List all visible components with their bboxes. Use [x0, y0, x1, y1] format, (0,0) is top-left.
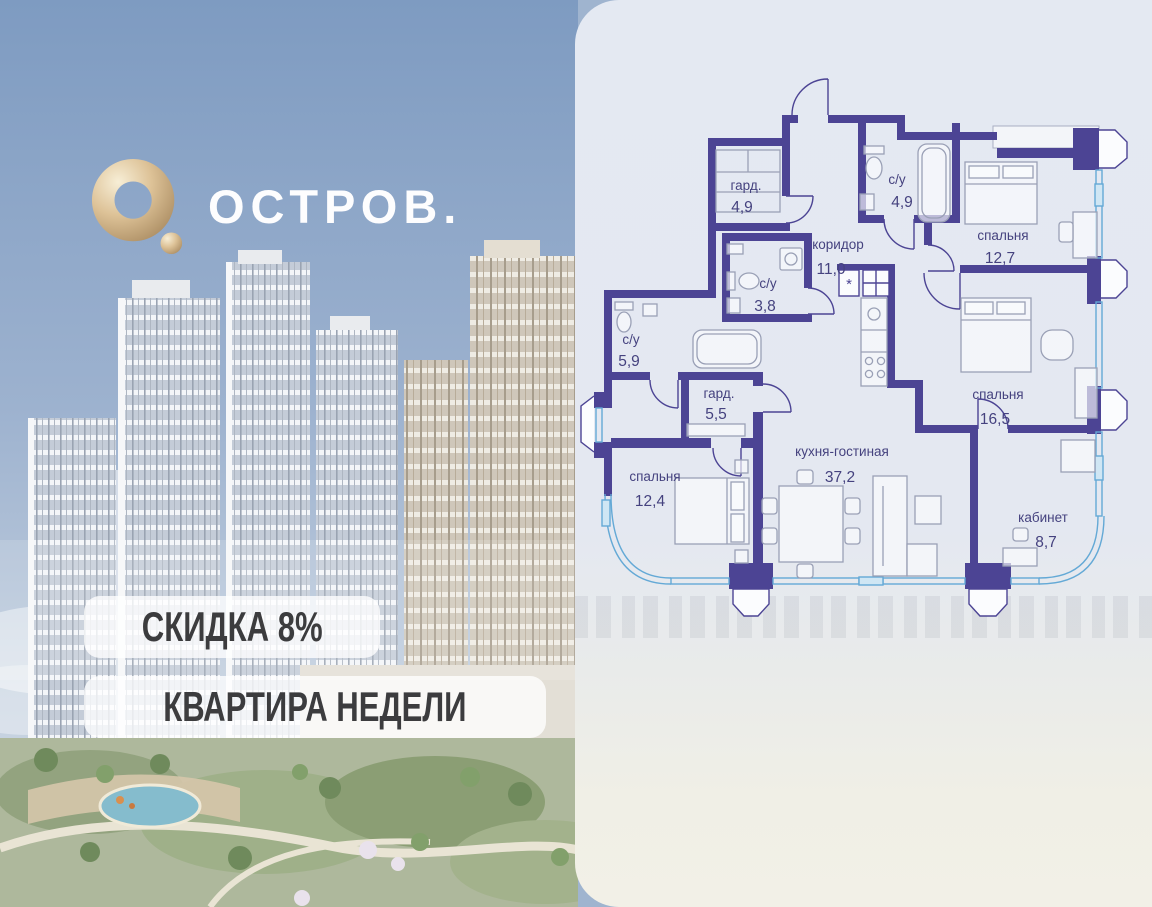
- room-area-bath-1: 4,9: [891, 194, 913, 211]
- room-area-bedroom-2: 12,4: [635, 493, 666, 510]
- room-area-kitchen-living: 37,2: [825, 469, 855, 486]
- room-label-bedroom-2: спальня: [629, 469, 680, 484]
- stats-row: 123.50 площадь 15 этаж 4 комнат: [575, 640, 1152, 760]
- room-area-wardrobe-2: 5,5: [705, 406, 727, 423]
- room-area-corridor: 11,0: [816, 261, 845, 278]
- building-photo: ОСТРОВ. СКИДКА 8% КВАРТИРА НЕДЕЛИ: [0, 0, 578, 907]
- weekly-apartment-badge: КВАРТИРА НЕДЕЛИ: [84, 676, 546, 738]
- logo-text: ОСТРОВ.: [208, 183, 462, 230]
- floorplan-panel: *: [575, 0, 1152, 907]
- room-label-office: кабинет: [1018, 510, 1068, 525]
- room-label-bath-1: с/у: [888, 172, 906, 187]
- pool: [100, 785, 200, 827]
- room-area-bedroom-1: 12,7: [985, 250, 1015, 267]
- park: [0, 738, 578, 907]
- shaft-symbol: *: [846, 276, 852, 293]
- logo: ОСТРОВ.: [90, 156, 462, 256]
- room-area-wardrobe-1: 4,9: [731, 199, 753, 216]
- room-area-bath-3: 5,9: [618, 353, 640, 370]
- photo-scene: [0, 0, 578, 907]
- room-area-bedroom-3: 16,5: [980, 411, 1010, 428]
- room-label-bath-2: с/у: [759, 276, 777, 291]
- room-label-wardrobe-1: гард.: [731, 178, 762, 193]
- ad-banner: ОСТРОВ. СКИДКА 8% КВАРТИРА НЕДЕЛИ: [0, 0, 1152, 907]
- room-label-bedroom-1: спальня: [977, 228, 1028, 243]
- room-label-kitchen-living: кухня-гостиная: [795, 444, 889, 459]
- room-label-wardrobe-2: гард.: [704, 386, 735, 401]
- room-area-office: 8,7: [1035, 534, 1057, 551]
- ostrov-logo-icon: [90, 156, 188, 256]
- discount-badge-text: СКИДКА 8%: [142, 606, 323, 648]
- utility-shaft: *: [839, 270, 889, 296]
- room-label-bath-3: с/у: [622, 332, 640, 347]
- floorplan-svg: *: [575, 0, 1152, 640]
- room-label-corridor: коридор: [812, 237, 864, 252]
- room-area-bath-2: 3,8: [754, 298, 776, 315]
- weekly-apartment-badge-text: КВАРТИРА НЕДЕЛИ: [163, 686, 466, 728]
- room-label-bedroom-3: спальня: [972, 387, 1023, 402]
- discount-badge: СКИДКА 8%: [84, 596, 380, 658]
